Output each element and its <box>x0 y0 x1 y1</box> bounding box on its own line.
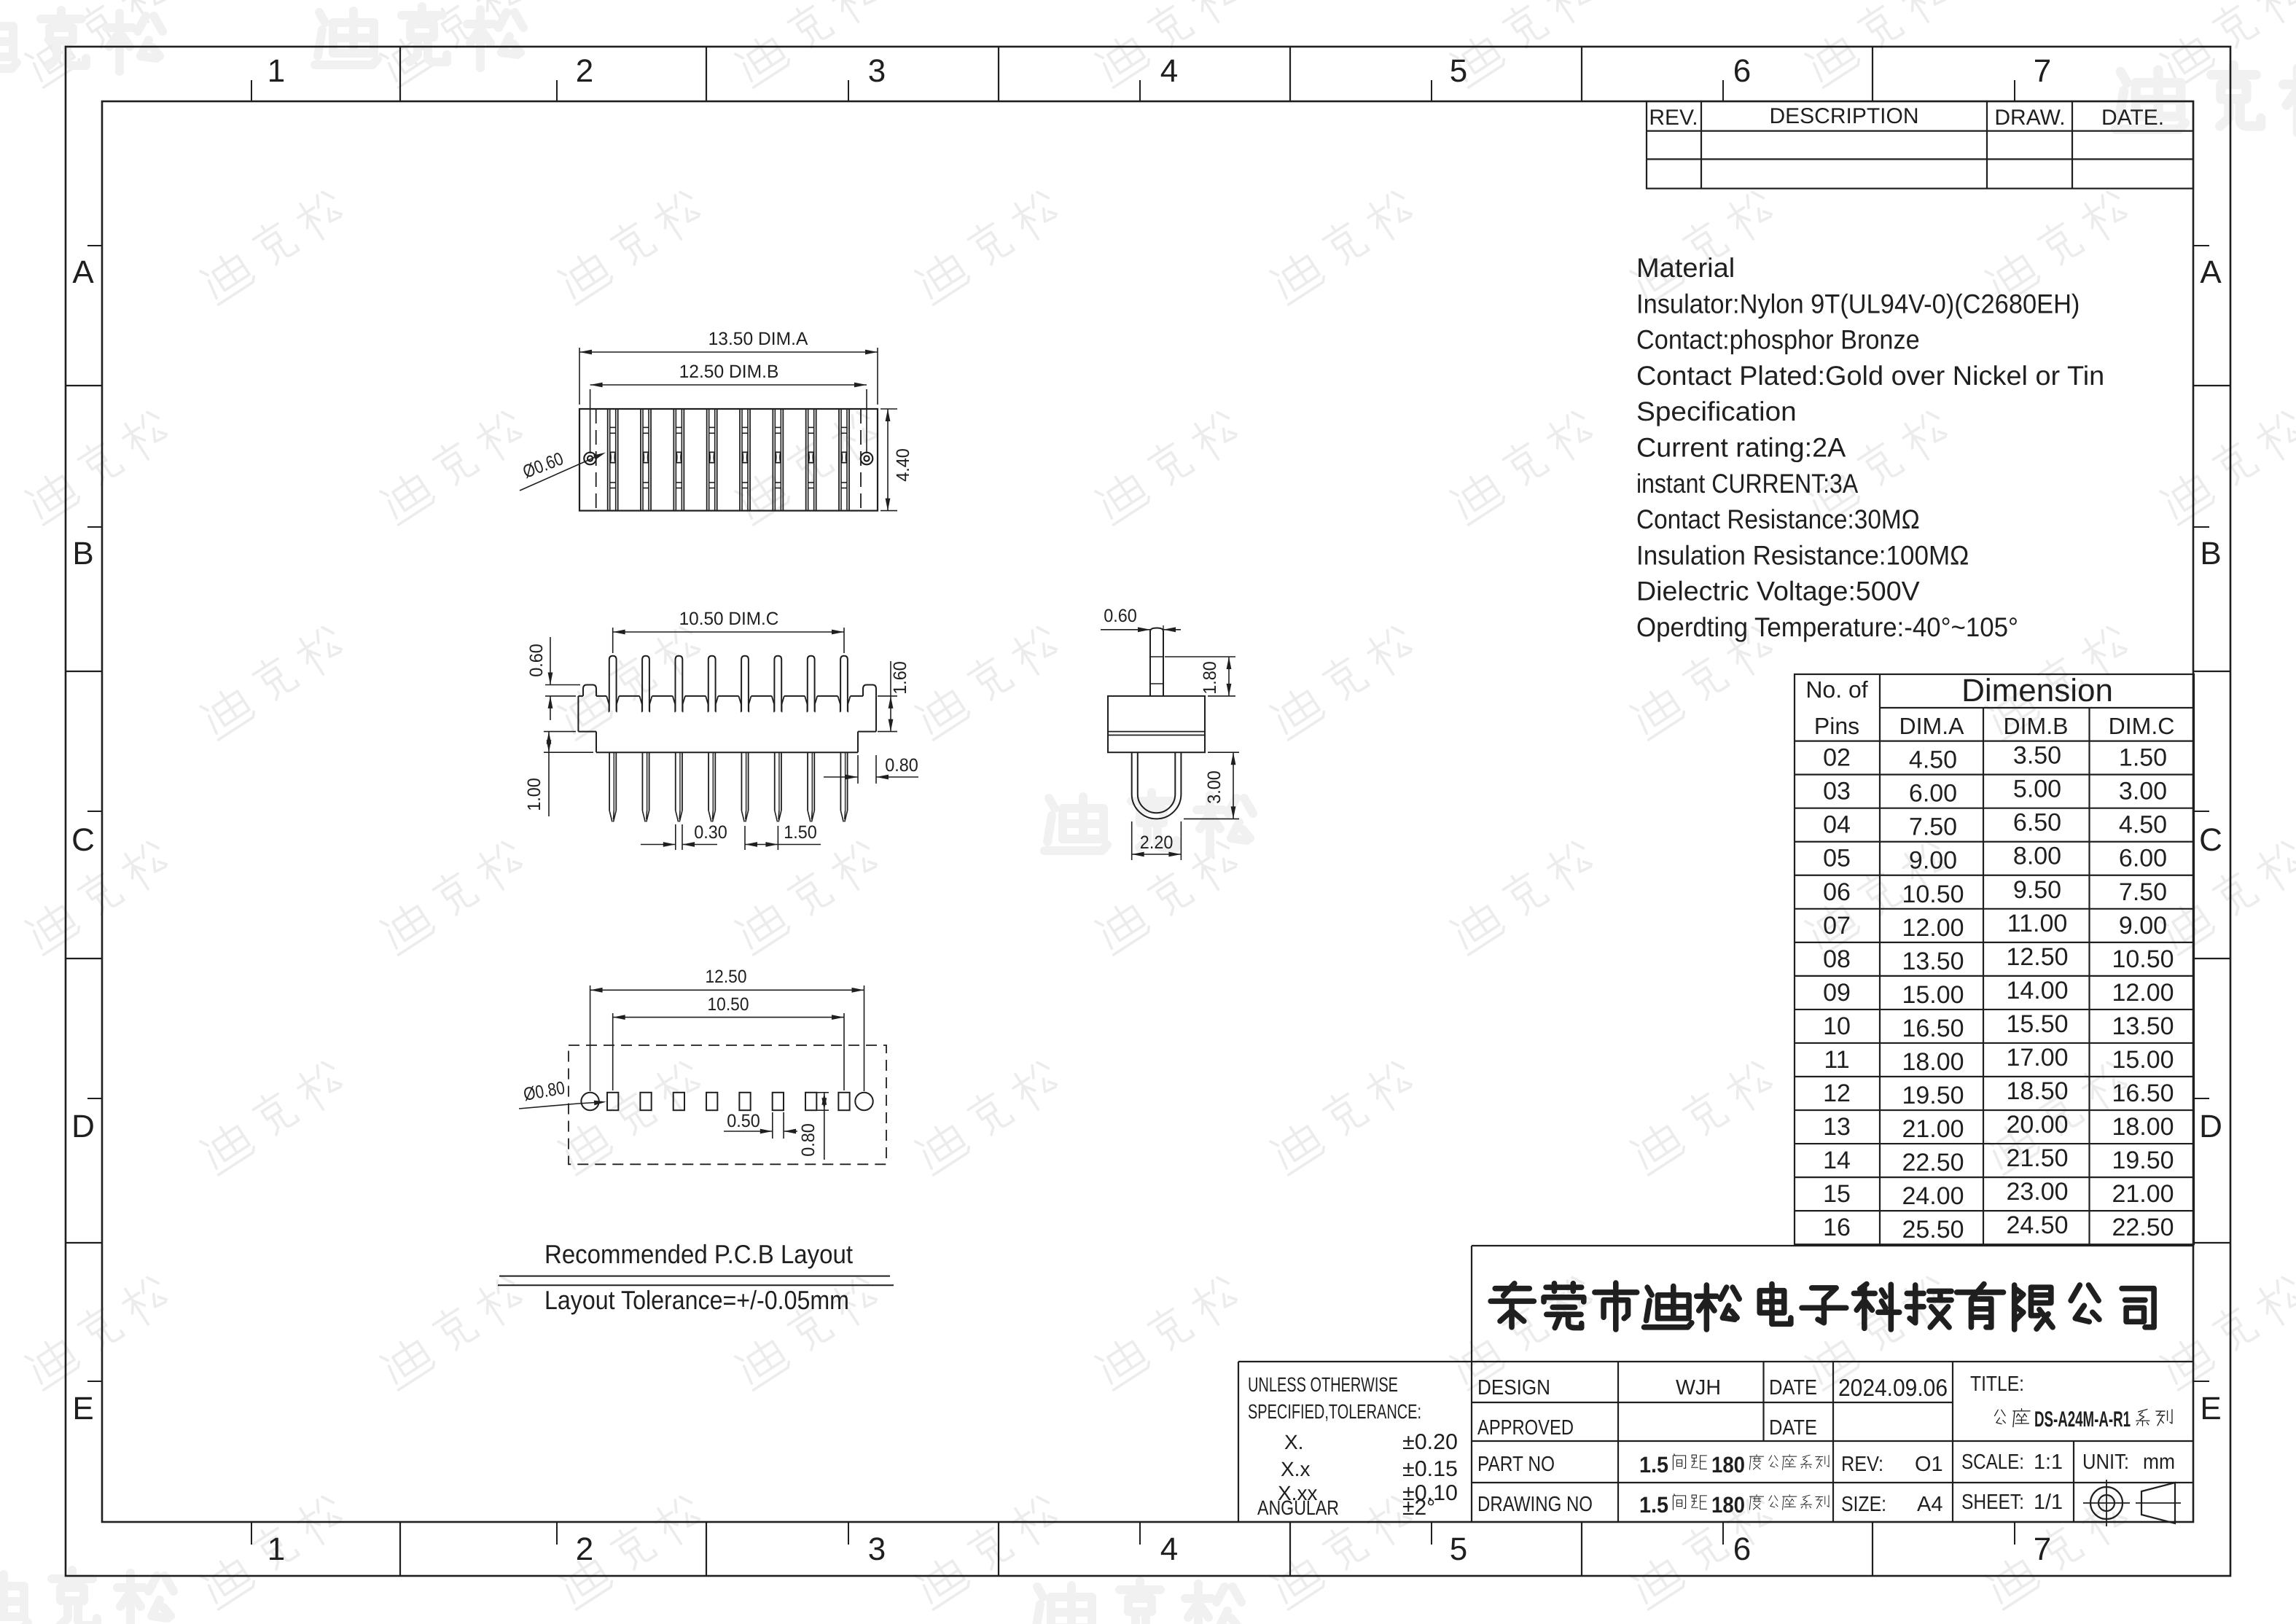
svg-text:1.50: 1.50 <box>2119 744 2167 772</box>
svg-text:2024.09.06: 2024.09.06 <box>1838 1374 1948 1401</box>
svg-text:Dimension: Dimension <box>1961 673 2113 708</box>
svg-text:Layout Tolerance=+/-0.05mm: Layout Tolerance=+/-0.05mm <box>544 1285 849 1315</box>
svg-text:1.50: 1.50 <box>784 822 817 843</box>
svg-text:1.80: 1.80 <box>1200 661 1220 695</box>
svg-text:0.60: 0.60 <box>1104 606 1137 626</box>
svg-text:18.00: 18.00 <box>1902 1048 1964 1076</box>
svg-text:0.60: 0.60 <box>526 644 547 677</box>
svg-text:1.00: 1.00 <box>524 778 544 811</box>
svg-text:D: D <box>71 1109 95 1144</box>
svg-text:10.50: 10.50 <box>2112 945 2174 973</box>
svg-text:3: 3 <box>868 1531 886 1567</box>
svg-text:DRAW.: DRAW. <box>1994 106 2065 130</box>
svg-text:REV:: REV: <box>1841 1453 1883 1476</box>
svg-text:24.50: 24.50 <box>2006 1211 2068 1239</box>
svg-text:X.: X. <box>1284 1431 1303 1453</box>
svg-text:DATE.: DATE. <box>2101 106 2164 130</box>
svg-text:0.80: 0.80 <box>885 755 918 776</box>
svg-text:DRAWING NO: DRAWING NO <box>1477 1493 1593 1516</box>
svg-text:Contact:phosphor Bronze: Contact:phosphor Bronze <box>1636 325 1920 355</box>
svg-text:6.00: 6.00 <box>1909 780 1957 808</box>
svg-text:SCALE:: SCALE: <box>1961 1451 2024 1474</box>
svg-text:DIM.B: DIM.B <box>2004 713 2069 739</box>
svg-text:B: B <box>2200 536 2221 571</box>
svg-text:0.80: 0.80 <box>798 1123 819 1157</box>
svg-text:ANGULAR: ANGULAR <box>1257 1496 1339 1519</box>
svg-text:12: 12 <box>1823 1080 1851 1107</box>
svg-text:21.00: 21.00 <box>2112 1180 2174 1208</box>
svg-text:11: 11 <box>1824 1046 1849 1074</box>
svg-text:4.50: 4.50 <box>2119 811 2167 839</box>
svg-text:0.50: 0.50 <box>727 1111 760 1131</box>
svg-text:SHEET:: SHEET: <box>1961 1491 2024 1514</box>
svg-text:12.00: 12.00 <box>1902 914 1964 942</box>
svg-text:25.50: 25.50 <box>1902 1216 1964 1244</box>
svg-text:Contact Plated:Gold over Nicke: Contact Plated:Gold over Nickel or Tin <box>1636 361 2104 391</box>
svg-text:4.50: 4.50 <box>1909 746 1957 774</box>
svg-text:15.00: 15.00 <box>1902 981 1964 1009</box>
svg-text:B: B <box>72 536 93 571</box>
svg-text:0.30: 0.30 <box>694 822 727 843</box>
svg-text:DATE: DATE <box>1769 1376 1817 1399</box>
svg-text:DESIGN: DESIGN <box>1477 1376 1550 1399</box>
svg-text:APPROVED: APPROVED <box>1477 1416 1574 1440</box>
svg-text:Insulator:Nylon 9T(UL94V-0)(C2: Insulator:Nylon 9T(UL94V-0)(C2680EH) <box>1636 289 2080 319</box>
svg-text:18.50: 18.50 <box>2006 1077 2068 1105</box>
svg-text:E: E <box>2200 1391 2221 1426</box>
svg-text:16.50: 16.50 <box>1902 1015 1964 1042</box>
svg-text:3.00: 3.00 <box>2119 778 2167 805</box>
svg-text:4.40: 4.40 <box>893 448 913 482</box>
svg-text:22.50: 22.50 <box>1902 1149 1964 1176</box>
svg-text:TITLE:: TITLE: <box>1970 1373 2024 1396</box>
svg-text:REV.: REV. <box>1649 106 1698 130</box>
svg-text:DIM.A: DIM.A <box>1899 713 1965 739</box>
svg-text:6.00: 6.00 <box>2119 845 2167 872</box>
svg-text:Insulation Resistance:100MΩ: Insulation Resistance:100MΩ <box>1636 540 1969 570</box>
svg-text:08: 08 <box>1823 945 1851 973</box>
svg-text:1/1: 1/1 <box>2034 1491 2063 1514</box>
svg-text:09: 09 <box>1823 979 1851 1007</box>
svg-text:13.50 DIM.A: 13.50 DIM.A <box>708 329 808 349</box>
svg-text:E: E <box>72 1391 93 1426</box>
svg-text:18.00: 18.00 <box>2112 1113 2174 1141</box>
svg-text:23.00: 23.00 <box>2006 1178 2068 1206</box>
svg-text:24.00: 24.00 <box>1902 1182 1964 1210</box>
svg-text:9.50: 9.50 <box>2013 876 2061 904</box>
svg-text:UNLESS OTHERWISE: UNLESS OTHERWISE <box>1248 1373 1398 1396</box>
svg-text:C: C <box>71 822 95 858</box>
svg-text:DIM.C: DIM.C <box>2109 713 2175 739</box>
svg-text:16: 16 <box>1823 1214 1851 1241</box>
svg-text:±0.20: ±0.20 <box>1402 1430 1458 1454</box>
svg-text:5: 5 <box>1450 53 1467 89</box>
svg-text:X.x: X.x <box>1281 1458 1310 1480</box>
svg-text:7: 7 <box>2034 1531 2051 1567</box>
svg-text:11.00: 11.00 <box>2007 910 2068 937</box>
svg-text:UNIT:: UNIT: <box>2082 1451 2129 1474</box>
svg-text:Material: Material <box>1636 253 1735 283</box>
svg-text:9.00: 9.00 <box>1909 847 1957 875</box>
svg-text:10.50 DIM.C: 10.50 DIM.C <box>679 609 779 629</box>
svg-text:15.50: 15.50 <box>2006 1010 2068 1038</box>
svg-text:1: 1 <box>268 1531 285 1567</box>
svg-text:±0.15: ±0.15 <box>1402 1457 1458 1481</box>
svg-text:1.5: 1.5 <box>1639 1492 1668 1518</box>
svg-text:03: 03 <box>1823 778 1851 805</box>
svg-text:SPECIFIED,TOLERANCE:: SPECIFIED,TOLERANCE: <box>1248 1400 1421 1423</box>
svg-text:3.50: 3.50 <box>2013 742 2061 770</box>
svg-text:5: 5 <box>1450 1531 1467 1567</box>
svg-text:Specification: Specification <box>1636 397 1797 426</box>
svg-text:6: 6 <box>1733 1531 1751 1567</box>
svg-text:Current rating:2A: Current rating:2A <box>1636 433 1846 463</box>
svg-text:A: A <box>2200 254 2222 290</box>
svg-text:20.00: 20.00 <box>2006 1111 2068 1139</box>
svg-text:C: C <box>2199 822 2222 858</box>
svg-text:06: 06 <box>1823 878 1851 906</box>
svg-text:mm: mm <box>2143 1451 2175 1474</box>
svg-text:13: 13 <box>1823 1113 1851 1141</box>
svg-text:Pins: Pins <box>1814 713 1859 739</box>
svg-text:Dielectric Voltage:500V: Dielectric Voltage:500V <box>1636 577 1920 606</box>
svg-text:10: 10 <box>1823 1012 1851 1040</box>
svg-text:15.00: 15.00 <box>2112 1046 2174 1074</box>
svg-text:2: 2 <box>576 53 593 89</box>
svg-text:12.50: 12.50 <box>706 967 747 987</box>
svg-text:1: 1 <box>268 53 285 89</box>
svg-text:5.00: 5.00 <box>2013 776 2061 803</box>
svg-text:SIZE:: SIZE: <box>1841 1493 1886 1516</box>
svg-text:2: 2 <box>576 1531 593 1567</box>
svg-text:Operdting Temperature:-40°~105: Operdting Temperature:-40°~105° <box>1636 612 2018 642</box>
svg-text:4: 4 <box>1160 1531 1178 1567</box>
svg-text:DATE: DATE <box>1769 1416 1817 1440</box>
svg-text:3.00: 3.00 <box>1204 770 1225 804</box>
svg-text:A: A <box>72 254 94 290</box>
svg-text:19.50: 19.50 <box>2112 1147 2174 1174</box>
svg-text:D: D <box>2199 1109 2222 1144</box>
svg-text:16.50: 16.50 <box>2112 1080 2174 1107</box>
svg-text:O1: O1 <box>1915 1453 1943 1476</box>
svg-text:7: 7 <box>2034 53 2051 89</box>
svg-text:180: 180 <box>1711 1492 1745 1518</box>
svg-text:12.50: 12.50 <box>2006 943 2068 971</box>
svg-text:13.50: 13.50 <box>2112 1012 2174 1040</box>
svg-text:6.50: 6.50 <box>2013 809 2061 837</box>
svg-text:3: 3 <box>868 53 886 89</box>
svg-text:180: 180 <box>1711 1452 1745 1477</box>
svg-text:Contact Resistance:30MΩ: Contact Resistance:30MΩ <box>1636 504 1920 534</box>
svg-text:02: 02 <box>1823 744 1851 772</box>
svg-text:12.50 DIM.B: 12.50 DIM.B <box>679 362 779 382</box>
svg-text:8.00: 8.00 <box>2013 843 2061 870</box>
svg-text:7.50: 7.50 <box>1909 813 1957 841</box>
svg-text:No. of: No. of <box>1805 676 1867 703</box>
svg-text:21.00: 21.00 <box>1902 1115 1964 1143</box>
svg-text:14: 14 <box>1823 1147 1851 1174</box>
svg-text:07: 07 <box>1823 912 1851 940</box>
svg-text:10.50: 10.50 <box>1902 881 1964 908</box>
svg-text:9.00: 9.00 <box>2119 912 2167 940</box>
svg-text:17.00: 17.00 <box>2006 1044 2068 1071</box>
svg-text:DESCRIPTION: DESCRIPTION <box>1769 104 1918 128</box>
svg-text:±2°: ±2° <box>1402 1496 1435 1520</box>
svg-text:1:1: 1:1 <box>2034 1451 2063 1474</box>
svg-text:13.50: 13.50 <box>1902 948 1964 975</box>
svg-text:05: 05 <box>1823 845 1851 872</box>
svg-text:4: 4 <box>1160 53 1178 89</box>
svg-text:7.50: 7.50 <box>2119 878 2167 906</box>
svg-text:12.00: 12.00 <box>2112 979 2174 1007</box>
svg-text:14.00: 14.00 <box>2006 977 2068 1004</box>
svg-text:2.20: 2.20 <box>1140 832 1174 853</box>
svg-text:PART NO: PART NO <box>1477 1453 1555 1476</box>
svg-text:DS-A24M-A-R1: DS-A24M-A-R1 <box>2034 1408 2131 1432</box>
svg-text:10.50: 10.50 <box>708 994 749 1015</box>
svg-text:22.50: 22.50 <box>2112 1214 2174 1241</box>
svg-text:instant CURRENT:3A: instant CURRENT:3A <box>1636 469 1858 499</box>
svg-text:6: 6 <box>1733 53 1751 89</box>
svg-text:15: 15 <box>1823 1180 1851 1208</box>
svg-text:21.50: 21.50 <box>2006 1144 2068 1172</box>
svg-text:19.50: 19.50 <box>1902 1082 1964 1109</box>
svg-text:1.60: 1.60 <box>890 661 910 695</box>
svg-text:WJH: WJH <box>1676 1376 1721 1399</box>
svg-text:1.5: 1.5 <box>1639 1452 1668 1477</box>
svg-text:04: 04 <box>1823 811 1851 839</box>
svg-text:Recommended P.C.B Layout: Recommended P.C.B Layout <box>544 1239 853 1269</box>
svg-text:A4: A4 <box>1917 1493 1942 1516</box>
